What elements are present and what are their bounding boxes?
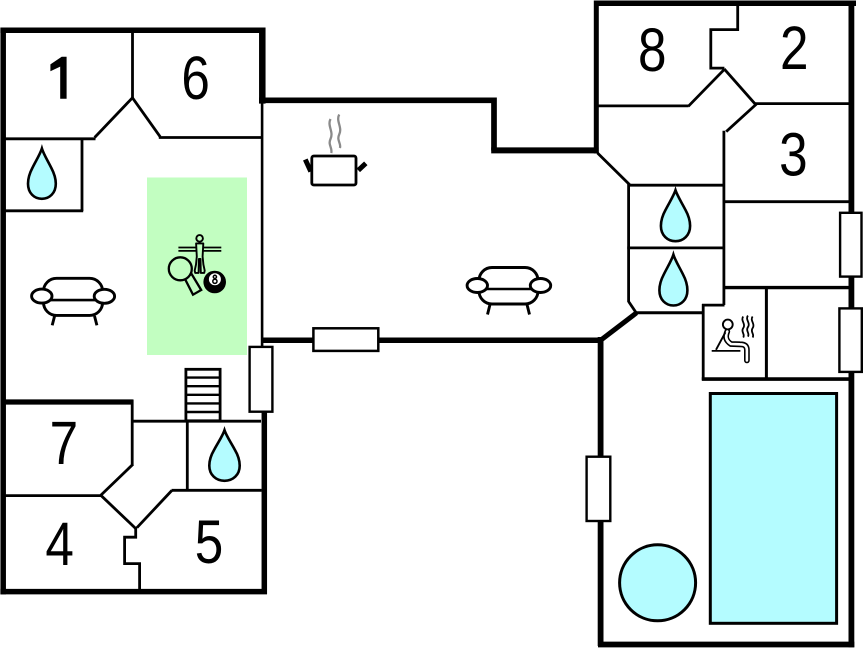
svg-text:5: 5 [195,508,223,576]
svg-text:7: 7 [50,409,78,477]
svg-text:3: 3 [779,120,807,188]
svg-text:6: 6 [181,44,209,112]
svg-text:4: 4 [45,510,73,578]
svg-text:2: 2 [780,14,808,82]
svg-text:8: 8 [638,16,666,84]
